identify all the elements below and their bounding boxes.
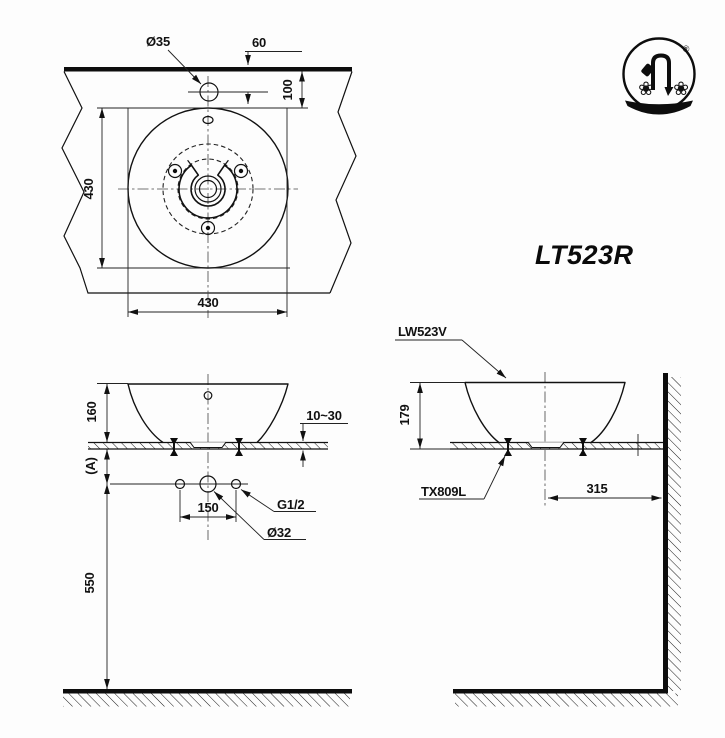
counter-drain-recess	[190, 442, 226, 447]
floor-hatch-right	[455, 694, 678, 707]
floor-line-right	[453, 689, 668, 694]
screw-dot	[239, 169, 243, 173]
wall-hatch	[668, 377, 681, 691]
drawing-canvas: Ø35 60 100 430 430	[0, 0, 725, 738]
label-drain-diameter: Ø32	[267, 525, 291, 540]
dim-supply-height: 550	[82, 572, 97, 593]
floor-hatch-left	[63, 694, 350, 707]
faucet-logo-icon: ❀ ❀ ®	[624, 39, 695, 115]
flower-handle-icon-right: ❀	[673, 78, 689, 100]
label-basin-model: LW523V	[398, 324, 447, 339]
bracket-tab-left	[188, 160, 192, 165]
technical-drawing-page: Ø35 60 100 430 430	[0, 0, 725, 738]
dim-wall-to-basin: 100	[280, 79, 295, 100]
d32-leader	[214, 492, 264, 540]
dim-basin-depth: 430	[81, 178, 96, 199]
dim-hole-spacing: 150	[197, 500, 218, 515]
front-elevation: 160 (A) 550 150 G1/2 Ø32 10~30	[63, 374, 352, 707]
plan-view: Ø35 60 100 430 430	[62, 34, 356, 318]
dim-faucet-offset: 60	[252, 35, 266, 50]
screw-dot	[206, 226, 210, 230]
label-supply-thread: G1/2	[277, 497, 304, 512]
registered-trademark: ®	[683, 44, 690, 54]
dim-faucet-hole-diameter: Ø35	[146, 34, 170, 49]
lw523v-leader	[462, 340, 506, 378]
bracket-tab-right	[225, 160, 229, 165]
dim-basin-height-side: 179	[397, 404, 412, 425]
dim-basin-width: 430	[197, 295, 218, 310]
label-faucet-model: TX809L	[421, 484, 466, 499]
plan-counter-break-right	[330, 72, 356, 294]
counter-drain-recess-side	[528, 442, 564, 447]
side-elevation: 179 LW523V TX809L 315	[395, 324, 681, 707]
logo-basin-fill	[625, 101, 693, 115]
screw-dot	[173, 169, 177, 173]
gooseneck-spout-icon	[653, 56, 669, 91]
dim-wall-distance: 315	[586, 481, 607, 496]
tx809l-leader	[484, 456, 505, 499]
dim-counter-offset: (A)	[83, 457, 98, 474]
g12-leader	[241, 490, 274, 512]
drain-bracket	[179, 165, 237, 218]
dim-counter-thickness: 10~30	[306, 408, 342, 423]
model-code-text: LT523R	[535, 240, 634, 270]
dim-basin-height-front: 160	[84, 401, 99, 422]
flower-handle-icon-left: ❀	[638, 78, 654, 100]
plan-wall-line	[64, 67, 352, 72]
wall-line	[663, 373, 668, 691]
floor-line-left	[63, 689, 352, 694]
